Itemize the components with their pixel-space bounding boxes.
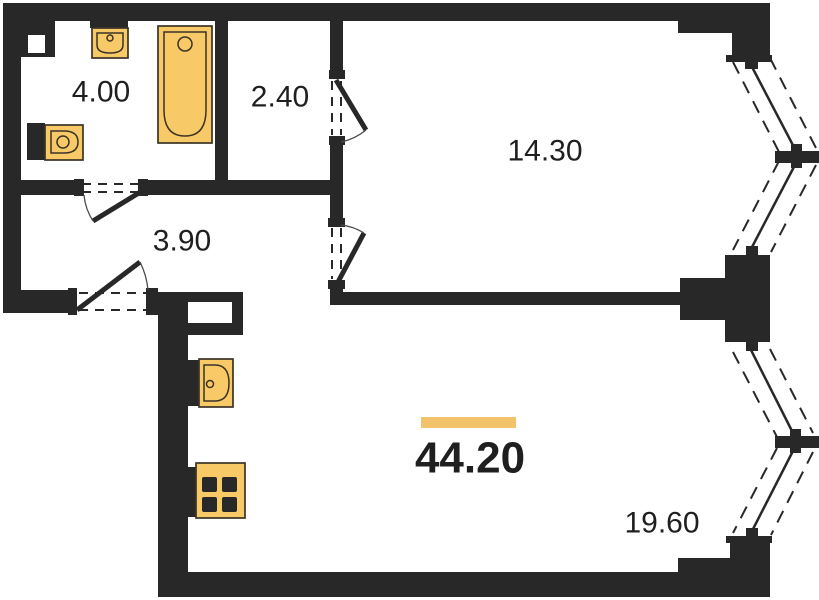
window-edge bbox=[771, 165, 816, 252]
window-sill-bottom-right bbox=[726, 536, 772, 543]
door-entry bbox=[77, 262, 148, 310]
shaft-bottom bbox=[188, 323, 243, 335]
wall-storage-right-upper bbox=[330, 21, 343, 70]
floorplan-drawing: 4.00 2.40 14.30 3.90 19.60 44.20 bbox=[0, 0, 819, 600]
door-hallway-bedroom bbox=[332, 225, 364, 282]
door-leaf bbox=[93, 191, 142, 221]
window-glass bbox=[751, 65, 796, 151]
window-glass bbox=[751, 449, 794, 533]
total-area-label: 44.20 bbox=[415, 434, 525, 483]
door-leaf bbox=[338, 233, 364, 282]
floorplan-canvas: 4.00 2.40 14.30 3.90 19.60 44.20 bbox=[0, 0, 819, 600]
bathtub-icon bbox=[158, 26, 212, 143]
door-jamb-storage-bottom bbox=[329, 136, 345, 145]
wall-bathroom-bottom-left bbox=[3, 180, 74, 195]
door-swing-arc bbox=[84, 195, 93, 221]
window-edge bbox=[771, 452, 813, 535]
window-edge bbox=[770, 349, 813, 433]
wall-entry bbox=[3, 290, 68, 313]
wall-storage-right-lower bbox=[330, 289, 343, 305]
wall-storage-right-mid bbox=[330, 145, 343, 218]
wall-mid-right-step bbox=[680, 278, 732, 320]
door-jamb-bedroom-bottom bbox=[328, 280, 345, 289]
wall-left bbox=[3, 21, 21, 313]
wall-bedroom-bottom bbox=[343, 292, 680, 305]
toilet-icon bbox=[27, 123, 83, 160]
window-glass bbox=[751, 163, 796, 249]
kitchen-sink-icon bbox=[188, 359, 233, 407]
door-swing-arc bbox=[140, 262, 148, 290]
wall-top-right-step bbox=[678, 21, 770, 33]
door-jamb-entry-right bbox=[146, 288, 158, 315]
room-area-label-hallway: 3.90 bbox=[153, 225, 211, 258]
door-jamb-entry-left bbox=[68, 288, 77, 315]
door-jamb-storage-top bbox=[329, 70, 345, 79]
wall-niche-top-left bbox=[28, 35, 45, 53]
door-leaf bbox=[77, 262, 140, 310]
stove-icon bbox=[188, 463, 245, 518]
wall-mid-right-pier bbox=[725, 255, 770, 342]
window-edge bbox=[733, 448, 777, 533]
window-edge bbox=[733, 161, 779, 250]
wall-bathroom-right bbox=[215, 21, 228, 180]
room-area-label-storage: 2.40 bbox=[251, 81, 309, 114]
wall-living-left bbox=[158, 292, 188, 572]
kitchen-fixtures bbox=[188, 359, 245, 518]
wall-top-right-block bbox=[732, 33, 770, 55]
window-sill-top-right bbox=[726, 55, 772, 62]
washbasin-icon bbox=[90, 21, 128, 58]
door-jamb-bath-left bbox=[74, 179, 84, 196]
window-edge bbox=[770, 58, 816, 148]
room-area-label-bedroom: 14.30 bbox=[507, 135, 582, 168]
total-area-accent-bar bbox=[421, 417, 516, 428]
door-bathroom bbox=[82, 184, 142, 221]
wall-bottom bbox=[158, 572, 730, 597]
wall-top bbox=[3, 3, 770, 21]
room-area-label-bathroom: 4.00 bbox=[72, 76, 130, 109]
wall-bottom-right-block bbox=[730, 543, 770, 597]
wall-bathroom-bottom-right bbox=[148, 180, 343, 195]
door-storage-bedroom bbox=[332, 80, 366, 142]
window-edge bbox=[733, 352, 777, 437]
room-area-label-living-kitchen: 19.60 bbox=[624, 507, 699, 540]
wall-bottom-right-step bbox=[678, 558, 730, 572]
window-glass bbox=[751, 350, 794, 435]
